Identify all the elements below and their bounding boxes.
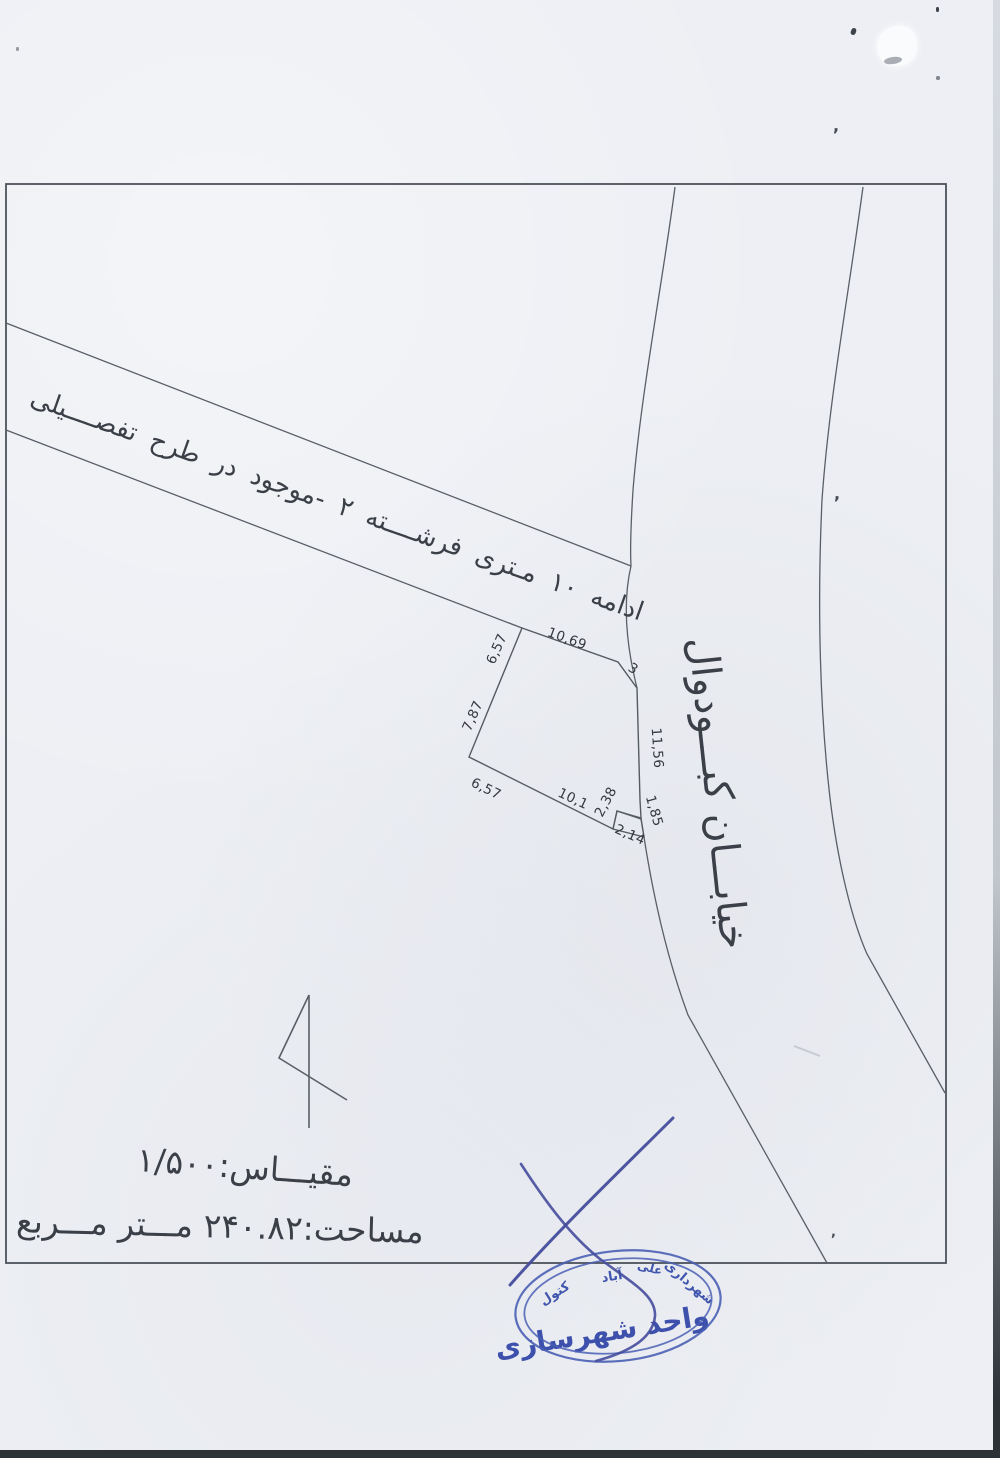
signature-stroke	[521, 1164, 655, 1361]
scan-speck	[936, 7, 939, 12]
signature-stroke	[510, 1118, 673, 1285]
scanned-survey-document: ادامه ۱۰ مـتری فرشــــته ۲ -موجود در طرح…	[0, 0, 1000, 1458]
scan-bottom-edge	[0, 1450, 1000, 1458]
scan-comma-artifact: ,	[831, 1226, 836, 1239]
scan-right-edge	[993, 0, 1000, 1458]
stamp-inner-ring	[520, 1249, 717, 1362]
scan-speck	[16, 47, 19, 51]
scan-speck	[936, 76, 940, 80]
ink-overlay	[0, 0, 1000, 1458]
scan-comma-artifact: ,	[833, 118, 839, 134]
stamp-outer-ring	[510, 1241, 726, 1372]
scan-comma-artifact: ,	[834, 486, 840, 502]
